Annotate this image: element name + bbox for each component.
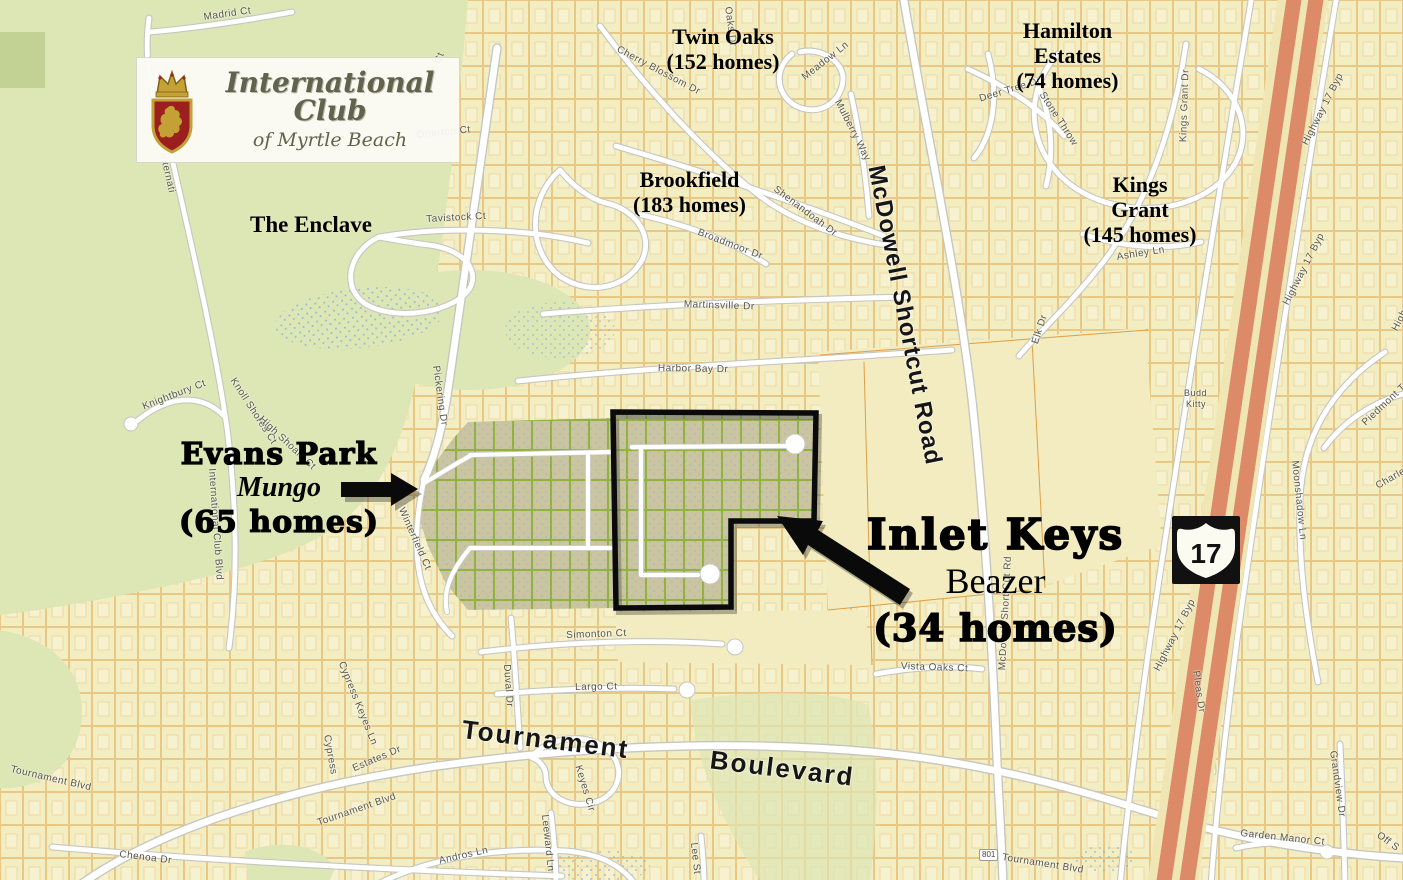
street-label: Largo Ct xyxy=(575,681,618,693)
street-label: Duval Dr xyxy=(501,664,515,708)
street-label: Tournament Blvd xyxy=(1001,852,1084,876)
street-label: Tavistock Ct xyxy=(426,211,486,225)
neighborhood-homes: (34 homes) xyxy=(838,608,1153,649)
street-label: Highway 17 Byp xyxy=(1281,231,1327,307)
neighborhood-name: Kings Grant xyxy=(1050,172,1230,222)
street-label: Keyes Cir xyxy=(572,764,597,813)
street-label: Tournament Blvd xyxy=(10,764,93,793)
label-brookfield: Brookfield (183 homes) xyxy=(582,167,797,217)
neighborhood-name: The Enclave xyxy=(222,212,400,238)
street-label: Simonton Ct xyxy=(566,628,627,641)
neighborhood-homes: (74 homes) xyxy=(980,68,1155,93)
street-label: Piedmont Tr xyxy=(1360,379,1403,428)
street-label: Leeward Ln xyxy=(539,814,556,872)
street-label: Budd xyxy=(1184,388,1207,398)
street-label: Elk Dr xyxy=(1030,313,1050,345)
neighborhood-name: Inlet Keys xyxy=(838,512,1153,558)
street-label: Winterfield Ct xyxy=(396,506,433,572)
route-marker-801: 801 xyxy=(979,849,998,861)
street-label: Cypress Keyes Ln xyxy=(336,660,380,747)
label-twin-oaks: Twin Oaks (152 homes) xyxy=(608,24,838,74)
street-label: Kitty xyxy=(1186,399,1206,409)
street-label: Kings Grant Dr xyxy=(1178,69,1192,142)
street-label: Pleas Dr xyxy=(1190,670,1207,713)
neighborhood-homes: (145 homes) xyxy=(1050,222,1230,247)
neighborhood-homes: (183 homes) xyxy=(582,192,797,217)
street-label: Charleston xyxy=(1374,455,1403,491)
street-label: McDowell Shortcut Road xyxy=(862,163,948,467)
builder-name: Mungo xyxy=(170,473,388,504)
street-label: Andros Ln xyxy=(438,845,489,867)
label-hamilton-estates: Hamilton Estates (74 homes) xyxy=(980,18,1155,93)
street-label: Knightbury Ct xyxy=(141,378,208,412)
street-label: Chenoa Dr xyxy=(119,849,173,866)
street-label: Highway 17 Byp xyxy=(1300,71,1346,147)
street-label: Vista Oaks Ct xyxy=(901,661,969,674)
street-label: Mulberry Way xyxy=(832,98,872,163)
street-label: Madrid Ct xyxy=(203,5,252,23)
street-label: Cypress xyxy=(321,734,339,775)
neighborhood-homes: (152 homes) xyxy=(608,49,838,74)
street-label: Tournament Blvd xyxy=(316,791,398,828)
street-label: Moonshadow Ln xyxy=(1289,460,1308,541)
street-label: Tournament Boulevard xyxy=(460,714,856,793)
map-canvas: 17 Madrid CtMarsh CtOtterton CtOaks DrCh… xyxy=(0,0,1403,880)
label-inlet-keys: Inlet Keys Beazer (34 homes) xyxy=(838,512,1153,648)
street-label: Estates Dr xyxy=(351,744,403,774)
street-label: Stone Throw xyxy=(1037,90,1080,148)
neighborhood-name: Evans Park xyxy=(170,438,388,471)
street-label: Grandview Dr xyxy=(1327,750,1347,818)
street-label: Lee St xyxy=(688,842,702,875)
club-crest-icon xyxy=(137,62,207,158)
street-label: Off S xyxy=(1375,830,1402,854)
street-label: Highway 17 Byp xyxy=(1390,257,1403,333)
neighborhood-name: Brookfield xyxy=(582,167,797,192)
street-label: Pickering Dr xyxy=(430,365,449,426)
label-the-enclave: The Enclave xyxy=(222,212,400,238)
label-kings-grant: Kings Grant (145 homes) xyxy=(1050,172,1230,247)
club-logo: International Club of Myrtle Beach xyxy=(136,57,460,163)
neighborhood-name: Twin Oaks xyxy=(608,24,838,49)
neighborhood-homes: (65 homes) xyxy=(170,506,388,539)
street-label: Highway 17 Byp xyxy=(1152,597,1198,673)
club-logo-subtitle: of Myrtle Beach xyxy=(207,129,453,151)
label-evans-park: Evans Park Mungo (65 homes) xyxy=(170,438,388,539)
street-label: Harbor Bay Dr xyxy=(658,363,729,375)
club-logo-title: International Club xyxy=(207,69,453,125)
builder-name: Beazer xyxy=(838,562,1153,602)
street-label: Garden Manor Ct xyxy=(1240,828,1325,848)
neighborhood-name: Hamilton Estates xyxy=(980,18,1155,68)
street-label: Broadmoor Dr xyxy=(696,227,764,262)
street-label: Martinsville Dr xyxy=(684,299,755,312)
